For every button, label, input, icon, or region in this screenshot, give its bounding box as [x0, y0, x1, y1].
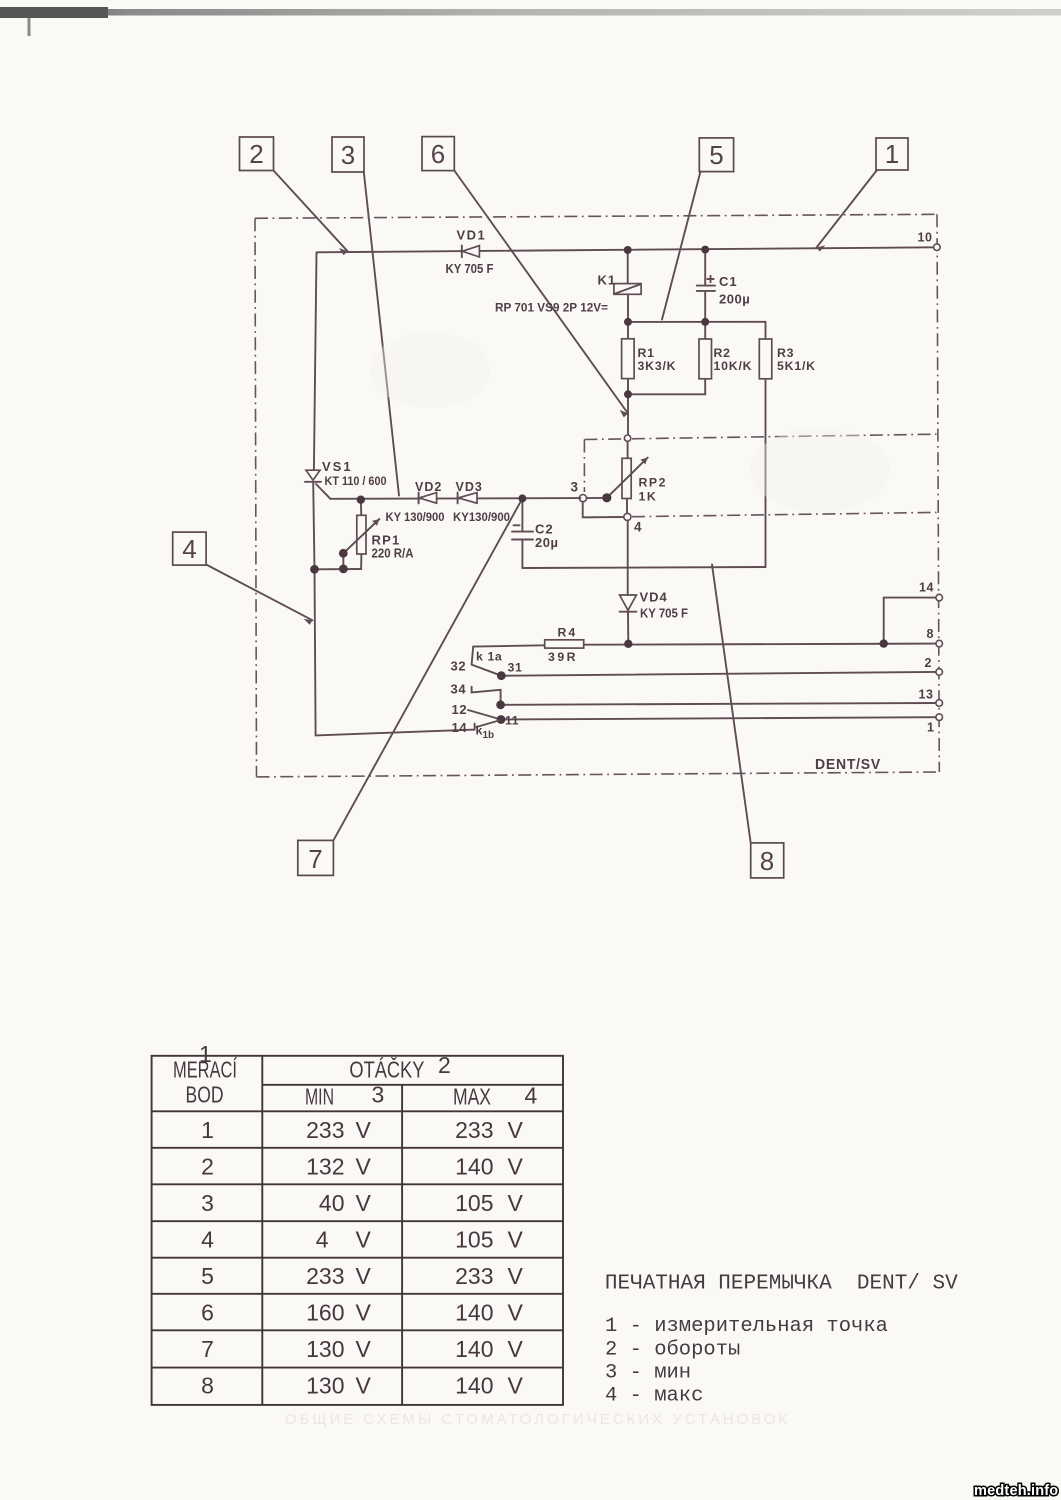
svg-text:5K1/K: 5K1/K	[777, 359, 816, 373]
svg-text:1b: 1b	[483, 730, 495, 741]
svg-text:3K3/K: 3K3/K	[638, 359, 677, 373]
svg-text:8: 8	[927, 627, 934, 641]
svg-text:1: 1	[201, 1117, 214, 1143]
svg-text:ПЕЧАТНАЯ ПЕРЕМЫЧКА DENT/ SV: ПЕЧАТНАЯ ПЕРЕМЫЧКА DENT/ SV	[605, 1273, 958, 1296]
svg-text:V: V	[508, 1190, 524, 1216]
svg-text:V: V	[508, 1117, 524, 1143]
svg-text:k 1a: k 1a	[476, 650, 502, 664]
svg-text:14: 14	[919, 581, 934, 595]
svg-text:V: V	[356, 1153, 372, 1179]
svg-text:MIN: MIN	[305, 1084, 334, 1110]
svg-text:OTÁČKY: OTÁČKY	[349, 1056, 424, 1083]
svg-text:105: 105	[455, 1226, 493, 1252]
svg-text:V: V	[508, 1299, 524, 1325]
svg-text:V: V	[508, 1153, 524, 1179]
svg-text:VD2: VD2	[415, 480, 442, 494]
svg-text:4: 4	[182, 534, 196, 564]
svg-text:233: 233	[455, 1117, 493, 1143]
svg-text:233: 233	[306, 1117, 344, 1143]
svg-text:8: 8	[760, 846, 774, 876]
svg-text:160: 160	[306, 1299, 344, 1325]
svg-text:140: 140	[455, 1373, 493, 1399]
svg-text:3 - мин: 3 - мин	[605, 1362, 691, 1385]
svg-text:k: k	[476, 724, 483, 738]
svg-text:4: 4	[634, 520, 642, 535]
svg-text:1 - измерительная точка: 1 - измерительная точка	[605, 1315, 888, 1338]
svg-text:3: 3	[201, 1190, 214, 1216]
svg-text:4: 4	[525, 1083, 538, 1109]
svg-text:5: 5	[201, 1263, 214, 1289]
svg-text:14: 14	[452, 720, 468, 735]
svg-text:140: 140	[455, 1153, 493, 1179]
svg-text:233: 233	[455, 1263, 493, 1289]
svg-text:3: 3	[571, 480, 579, 495]
svg-text:140: 140	[455, 1336, 493, 1362]
svg-text:3: 3	[341, 140, 355, 170]
svg-text:V: V	[356, 1336, 372, 1362]
svg-text:medteh.info: medteh.info	[974, 1483, 1058, 1499]
svg-text:2: 2	[925, 656, 932, 670]
svg-text:BOD: BOD	[186, 1082, 224, 1108]
svg-text:200µ: 200µ	[719, 292, 750, 307]
svg-text:V: V	[356, 1263, 372, 1289]
svg-text:2: 2	[438, 1052, 451, 1078]
svg-text:V: V	[356, 1226, 372, 1252]
svg-text:RP 701 VS9 2P 12V=: RP 701 VS9 2P 12V=	[495, 301, 608, 315]
svg-text:ОБЩИЕ СХЕМЫ СТОМАТОЛОГИЧЕСКИХ: ОБЩИЕ СХЕМЫ СТОМАТОЛОГИЧЕСКИХ УСТАНОВОК	[285, 1411, 790, 1428]
svg-text:DENT/SV: DENT/SV	[815, 757, 881, 773]
svg-text:4 - макс: 4 - макс	[605, 1385, 703, 1408]
svg-text:MAX: MAX	[453, 1084, 491, 1110]
svg-text:233: 233	[306, 1263, 344, 1289]
svg-text:V: V	[508, 1373, 524, 1399]
svg-text:7: 7	[201, 1336, 214, 1362]
svg-text:31: 31	[508, 661, 523, 675]
svg-text:4: 4	[201, 1226, 214, 1252]
svg-text:VS1: VS1	[322, 459, 353, 474]
svg-text:6: 6	[431, 139, 445, 169]
svg-text:VD4: VD4	[640, 590, 668, 605]
svg-text:KY 705 F: KY 705 F	[446, 262, 494, 276]
svg-text:10: 10	[918, 231, 933, 245]
svg-text:2: 2	[249, 139, 263, 169]
svg-text:1: 1	[199, 1041, 212, 1067]
svg-text:34: 34	[451, 682, 467, 697]
svg-text:130: 130	[306, 1373, 344, 1399]
svg-text:V: V	[508, 1336, 524, 1362]
svg-text:KY 130/900: KY 130/900	[386, 510, 445, 524]
svg-text:220 R/A: 220 R/A	[372, 547, 414, 561]
svg-text:C1: C1	[719, 274, 738, 289]
svg-text:5: 5	[709, 140, 723, 170]
svg-text:RP2: RP2	[639, 476, 667, 490]
svg-text:39R: 39R	[548, 650, 578, 664]
svg-text:V: V	[356, 1117, 372, 1143]
svg-text:VD1: VD1	[457, 228, 487, 243]
svg-text:132: 132	[306, 1153, 344, 1179]
svg-text:KT 110 / 600: KT 110 / 600	[325, 474, 387, 488]
svg-text:140: 140	[455, 1299, 493, 1325]
svg-text:KY 705 F: KY 705 F	[640, 607, 688, 621]
svg-text:1: 1	[885, 139, 899, 169]
svg-text:V: V	[356, 1373, 372, 1399]
svg-text:12: 12	[452, 702, 468, 717]
svg-text:6: 6	[201, 1299, 214, 1325]
svg-text:2: 2	[201, 1153, 214, 1179]
svg-text:8: 8	[201, 1373, 214, 1399]
svg-text:2 - обороты: 2 - обороты	[605, 1338, 740, 1361]
svg-text:32: 32	[451, 659, 467, 674]
svg-text:4: 4	[316, 1226, 329, 1252]
svg-text:K1: K1	[598, 273, 617, 288]
svg-text:V: V	[356, 1299, 372, 1325]
svg-text:V: V	[508, 1226, 524, 1252]
svg-text:105: 105	[455, 1190, 493, 1216]
svg-text:R4: R4	[558, 626, 578, 640]
svg-text:20µ: 20µ	[535, 535, 558, 550]
svg-text:7: 7	[308, 844, 322, 874]
svg-text:3: 3	[372, 1082, 385, 1108]
svg-text:V: V	[356, 1190, 372, 1216]
svg-text:1: 1	[927, 721, 934, 735]
svg-text:VD3: VD3	[456, 480, 483, 494]
svg-text:KY130/900: KY130/900	[453, 510, 510, 524]
svg-text:10K/K: 10K/K	[714, 359, 753, 373]
svg-text:130: 130	[306, 1336, 344, 1362]
svg-text:13: 13	[919, 688, 934, 702]
svg-text:40: 40	[319, 1190, 345, 1216]
svg-text:1K: 1K	[639, 490, 658, 504]
svg-text:V: V	[508, 1263, 524, 1289]
svg-text:RP1: RP1	[372, 533, 401, 548]
svg-text:11: 11	[505, 714, 519, 728]
